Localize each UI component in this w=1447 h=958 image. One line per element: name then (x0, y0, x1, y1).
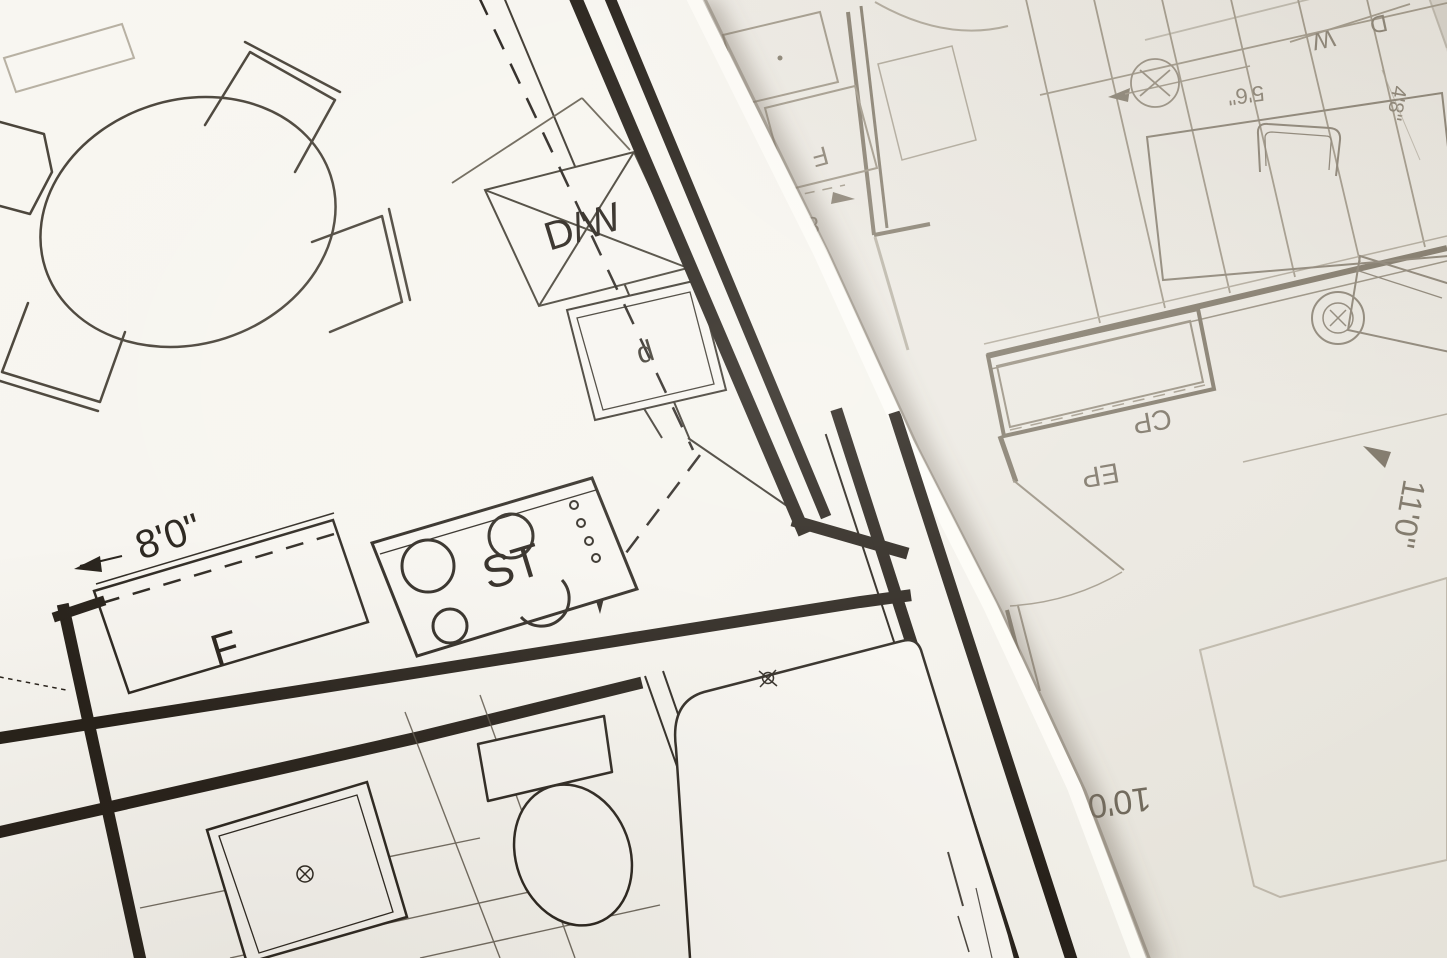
blueprint-canvas: W D 5'6" 4'8" (0, 0, 1447, 958)
panel-ep-label: EP (1079, 457, 1121, 494)
blueprint-photo: W D 5'6" 4'8" (0, 0, 1447, 958)
dim-small-left-label: 5'6" (1226, 81, 1266, 111)
